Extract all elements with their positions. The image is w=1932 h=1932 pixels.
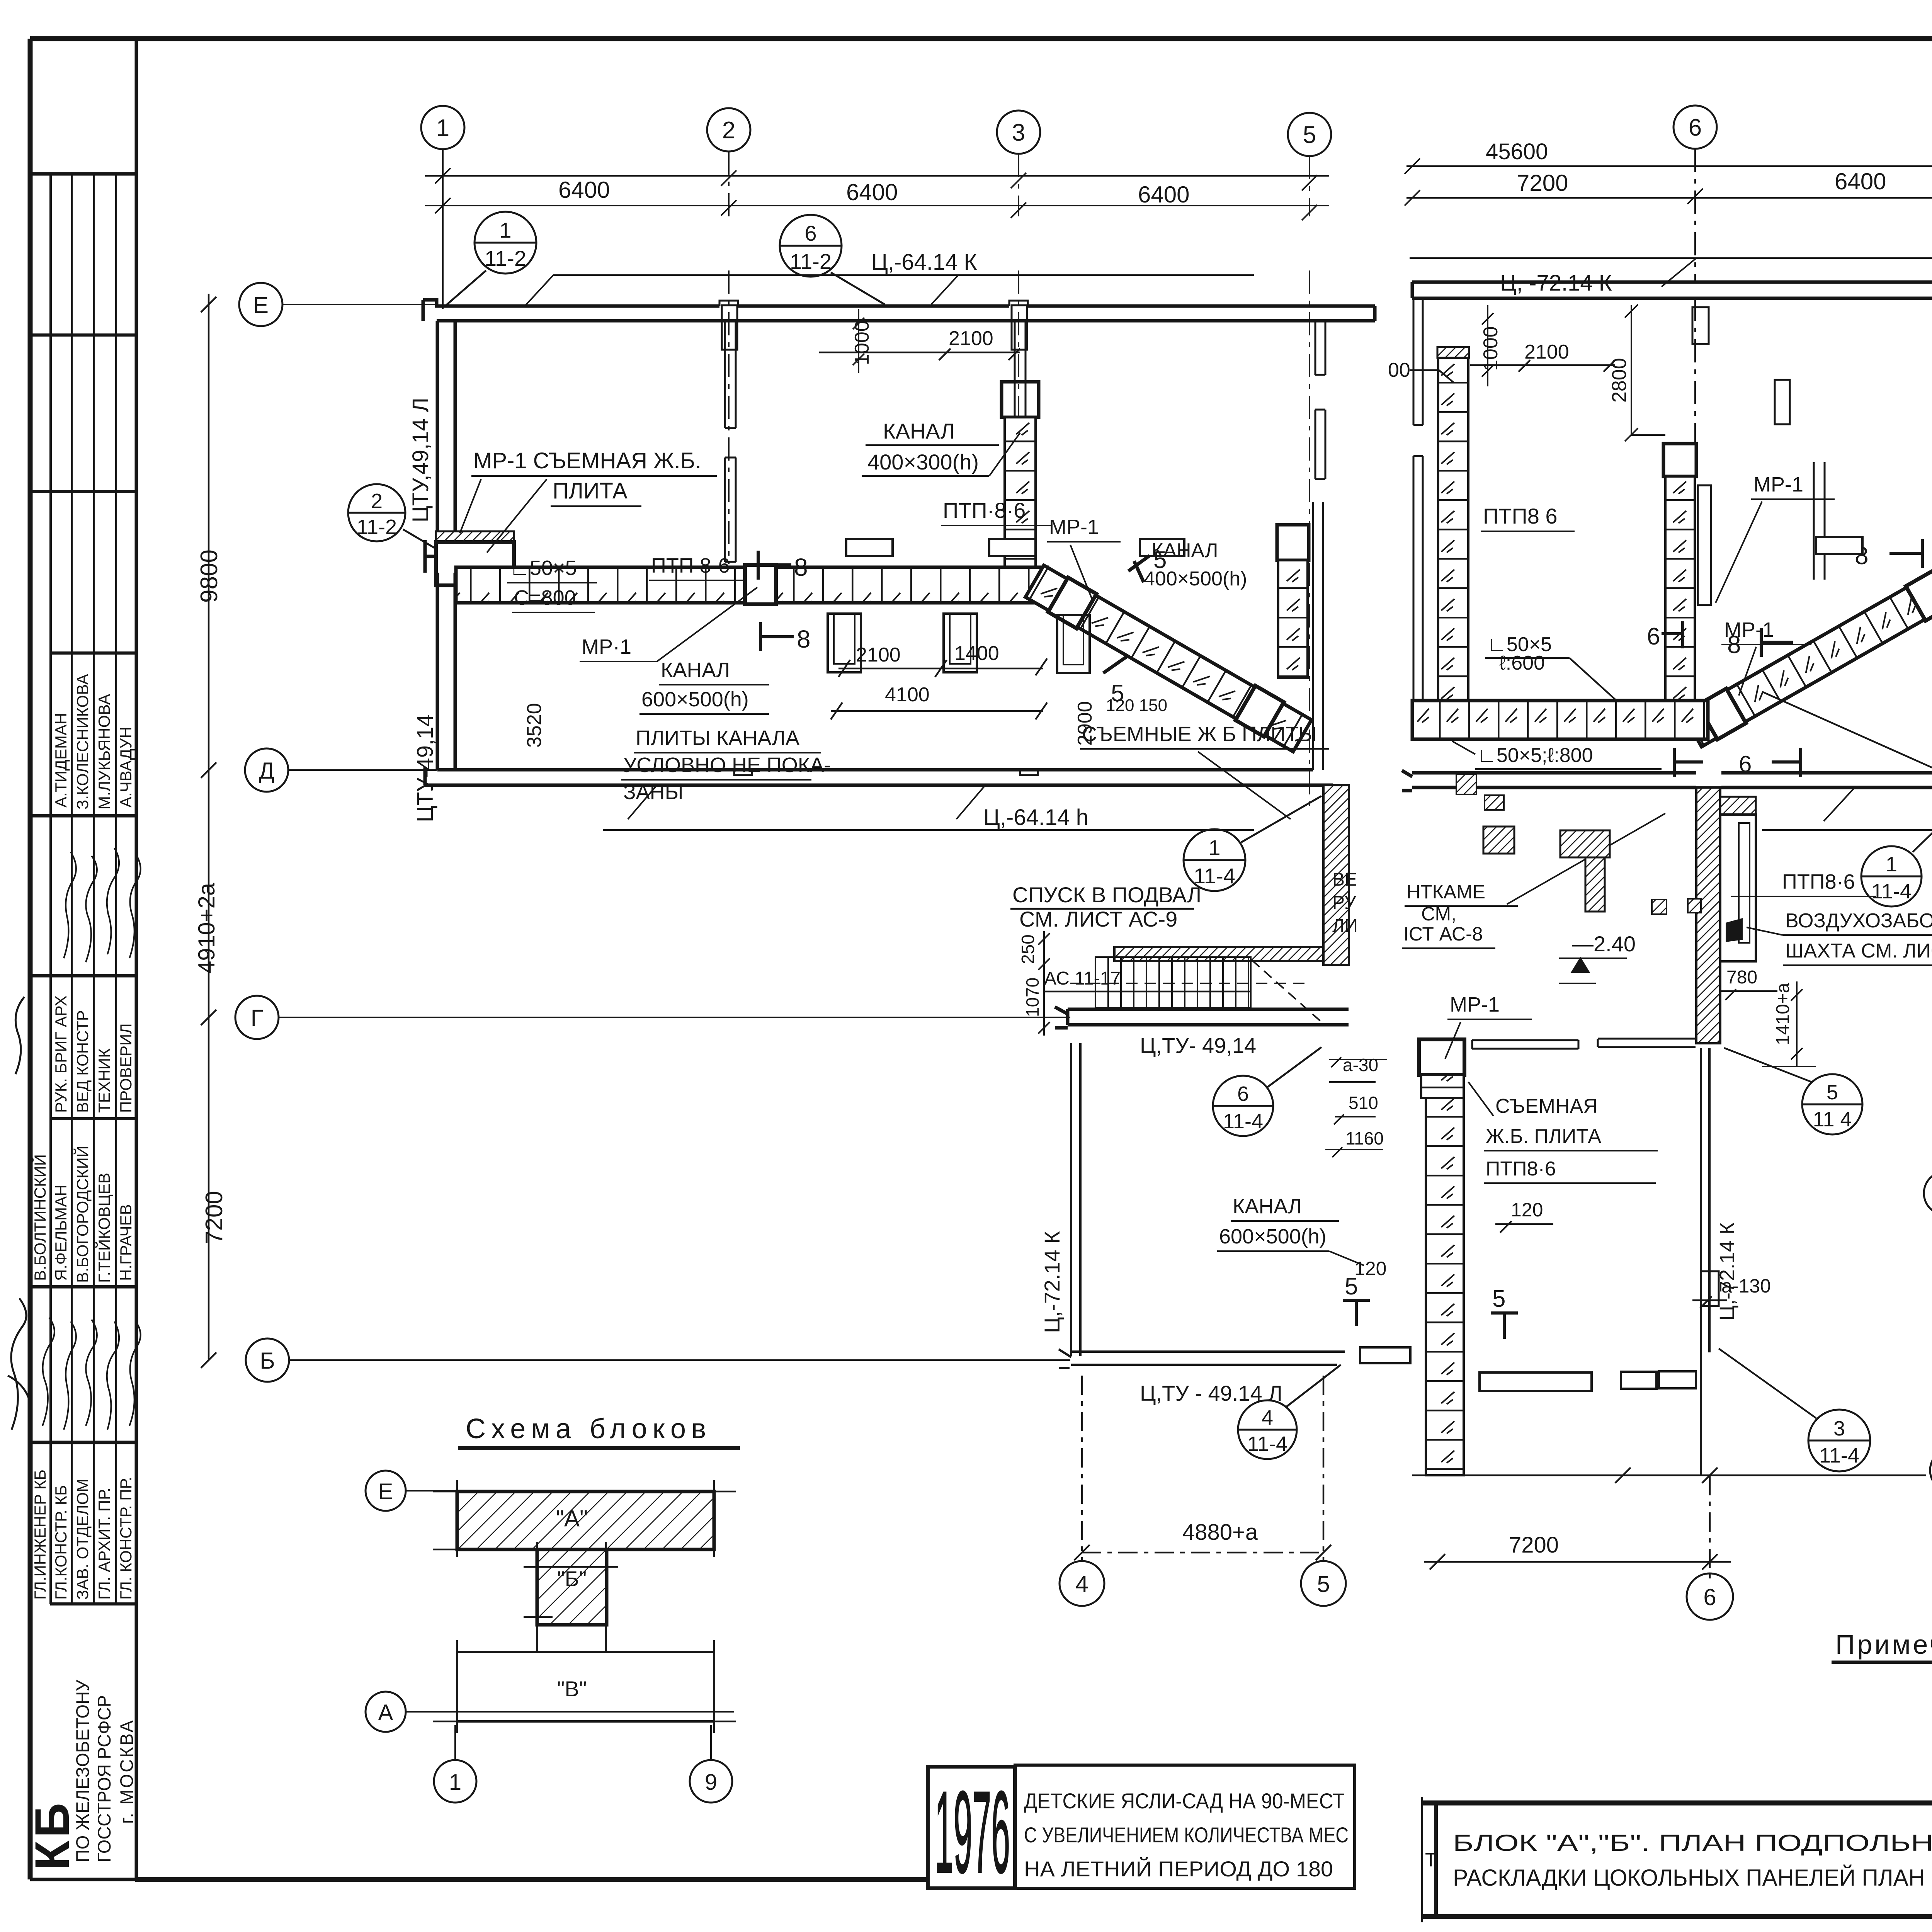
svg-text:ЛИ: ЛИ [1332,916,1358,936]
svg-text:780: 780 [1726,967,1757,988]
svg-text:МР-1: МР-1 [1049,515,1099,539]
svg-text:З.КОЛЕСНИКОВА: З.КОЛЕСНИКОВА [73,674,92,810]
svg-text:а-30: а-30 [1343,1055,1378,1075]
svg-text:РАСКЛАДКИ ЦОКОЛЬНЫХ ПАНЕЛЕЙ: РАСКЛАДКИ ЦОКОЛЬНЫХ ПАНЕЛЕЙ ПЛАН ПЕРЕКРЫ… [1453,1865,1932,1891]
svg-text:Ц,ТУ- 49,14: Ц,ТУ- 49,14 [1140,1033,1256,1058]
svg-text:1000: 1000 [1480,326,1502,371]
svg-text:5: 5 [1153,547,1167,573]
svg-text:"А": "А" [556,1505,588,1531]
svg-text:9800: 9800 [196,549,223,603]
svg-text:6: 6 [1703,1584,1716,1610]
svg-text:НТКАМЕ: НТКАМЕ [1406,881,1485,903]
svg-text:4: 4 [1075,1571,1088,1597]
svg-text:ПТП 8-6: ПТП 8-6 [651,554,730,577]
svg-text:1400: 1400 [954,642,999,665]
svg-text:7200: 7200 [1517,170,1568,196]
svg-text:В.БОГОРОДСКИЙ: В.БОГОРОДСКИЙ [73,1146,92,1283]
svg-text:6: 6 [1237,1082,1249,1105]
svg-text:5: 5 [1317,1571,1330,1597]
svg-text:3: 3 [1833,1417,1845,1440]
svg-text:11-2: 11-2 [485,246,526,270]
svg-text:С УВЕЛИЧЕНИЕМ КОЛИЧЕСТВА МЕС: С УВЕЛИЧЕНИЕМ КОЛИЧЕСТВА МЕС [1024,1823,1349,1847]
svg-text:ВЕД КОНСТР: ВЕД КОНСТР [73,1010,92,1113]
svg-text:Ц,-64.14 К: Ц,-64.14 К [871,250,977,275]
svg-text:Е: Е [378,1479,393,1504]
svg-text:600×500(h): 600×500(h) [641,688,749,711]
svg-text:11 4: 11 4 [1813,1108,1852,1131]
svg-text:2100: 2100 [949,327,993,350]
svg-text:Схема блоков: Схема блоков [466,1413,711,1444]
svg-text:Примечания: Примечания [1835,1629,1932,1660]
svg-text:Я.ФЕЛЬМАН: Я.ФЕЛЬМАН [52,1185,70,1281]
svg-text:ВОЗДУХОЗАБОРНАЯ ~: ВОЗДУХОЗАБОРНАЯ ~ [1785,910,1932,932]
svg-text:Ц,-72.14 К: Ц,-72.14 К [1040,1231,1064,1333]
svg-text:Ц,-64.14 h: Ц,-64.14 h [983,805,1088,830]
svg-text:4100: 4100 [885,684,930,706]
svg-text:8: 8 [794,553,808,581]
svg-text:ПТП8 6: ПТП8 6 [1483,504,1558,528]
svg-text:6: 6 [1647,623,1660,650]
svg-text:—2.40: —2.40 [1572,932,1636,956]
svg-text:45600: 45600 [1486,139,1548,164]
svg-text:9: 9 [705,1770,717,1795]
svg-text:∟50×5: ∟50×5 [509,556,577,580]
svg-text:Е: Е [253,292,269,318]
svg-text:1: 1 [499,218,511,242]
svg-text:Н.ГРАЧЕВ: Н.ГРАЧЕВ [117,1204,135,1281]
svg-text:"Б": "Б" [557,1566,587,1591]
svg-text:ДЕТСКИЕ ЯСЛИ-САД НА 90-МЕСТ: ДЕТСКИЕ ЯСЛИ-САД НА 90-МЕСТ [1024,1789,1345,1813]
svg-text:КАНАЛ: КАНАЛ [661,658,730,682]
svg-text:С=800: С=800 [514,586,576,609]
svg-text:Г.ТЕЙКОВЦЕВ: Г.ТЕЙКОВЦЕВ [95,1173,113,1283]
svg-text:ВЕ: ВЕ [1332,869,1357,890]
svg-text:МР-1 СЪЕМНАЯ Ж.Б.: МР-1 СЪЕМНАЯ Ж.Б. [473,448,701,473]
svg-text:6400: 6400 [558,177,610,203]
svg-text:ЗАВ. ОТДЕЛОМ: ЗАВ. ОТДЕЛОМ [73,1479,92,1600]
svg-text:5: 5 [1827,1081,1838,1104]
svg-text:ГЛ. АРХИТ. ПР.: ГЛ. АРХИТ. ПР. [95,1488,113,1600]
svg-text:2100: 2100 [856,644,901,666]
svg-text:120 150: 120 150 [1106,696,1167,715]
svg-text:"В": "В" [557,1677,587,1701]
svg-text:А.ТИДЕМАН: А.ТИДЕМАН [52,713,70,808]
svg-text:1: 1 [1886,853,1897,876]
svg-text:МР-1: МР-1 [1450,993,1500,1016]
svg-text:ЦТУ,49,14 Л: ЦТУ,49,14 Л [408,398,433,522]
svg-text:РУК. БРИГ АРХ: РУК. БРИГ АРХ [52,995,70,1113]
svg-text:600×500(h): 600×500(h) [1219,1225,1327,1248]
svg-text:5: 5 [1492,1286,1505,1312]
svg-text:2100: 2100 [1524,341,1569,363]
svg-text:КАНАЛ: КАНАЛ [1233,1195,1302,1218]
svg-text:СЪЕМНАЯ: СЪЕМНАЯ [1495,1095,1598,1117]
svg-text:СПУСК В ПОДВАЛ: СПУСК В ПОДВАЛ [1012,883,1201,907]
svg-text:КБ: КБ [26,1800,79,1870]
svg-text:ГЛ.ИНЖЕНЕР КБ: ГЛ.ИНЖЕНЕР КБ [31,1469,49,1600]
svg-text:11-4: 11-4 [1871,880,1912,903]
svg-text:6: 6 [1689,114,1702,141]
svg-text:МР·1: МР·1 [582,635,631,658]
svg-text:ПО ЖЕЛЕЗОБЕТОНУ: ПО ЖЕЛЕЗОБЕТОНУ [72,1679,93,1862]
svg-text:НА ЛЕТНИЙ ПЕРИОД ДО 180: НА ЛЕТНИЙ ПЕРИОД ДО 180 [1024,1857,1333,1881]
svg-text:В.БОЛТИНСКИЙ: В.БОЛТИНСКИЙ [31,1154,49,1281]
svg-text:Т: Т [1425,1849,1437,1871]
svg-text:6400: 6400 [1835,168,1886,194]
svg-text:А.ЧВАДУН: А.ЧВАДУН [117,726,135,808]
svg-text:МР-1: МР-1 [1724,618,1774,641]
svg-text:400×300(h): 400×300(h) [867,450,979,474]
svg-text:1: 1 [449,1770,461,1795]
svg-text:Ж.Б. ПЛИТА: Ж.Б. ПЛИТА [1486,1125,1601,1148]
svg-text:2: 2 [722,117,735,144]
svg-text:11-4: 11-4 [1223,1110,1263,1133]
svg-text:1160: 1160 [1345,1128,1384,1148]
svg-text:СМ. ЛИСТ АС-9: СМ. ЛИСТ АС-9 [1019,907,1177,931]
svg-text:∟50×5;ℓ:800: ∟50×5;ℓ:800 [1477,744,1593,767]
svg-text:7200: 7200 [201,1191,228,1244]
svg-text:КАНАЛ: КАНАЛ [883,419,955,443]
svg-text:БЛОК "А","Б". ПЛАН ПОДПОЛЬНЫ: БЛОК "А","Б". ПЛАН ПОДПОЛЬНЫХ -КАНАЛОВ. … [1453,1830,1932,1856]
svg-text:2: 2 [371,490,383,513]
svg-text:Г: Г [251,1005,264,1031]
svg-text:а-130: а-130 [1721,1275,1771,1297]
svg-text:ШАХТА СМ. ЛИСТ АС-8: ШАХТА СМ. ЛИСТ АС-8 [1785,940,1932,962]
svg-text:11-4: 11-4 [1819,1444,1859,1467]
svg-text:4: 4 [1262,1406,1273,1429]
svg-text:11-4: 11-4 [1247,1432,1287,1456]
svg-text:3: 3 [1012,119,1025,146]
svg-text:ТЕХНИК: ТЕХНИК [95,1048,113,1113]
svg-text:4880+а: 4880+а [1182,1520,1258,1545]
svg-text:ПЛИТЫ КАНАЛА: ПЛИТЫ КАНАЛА [636,726,799,750]
svg-text:ГЛ. КОНСТР. ПР.: ГЛ. КОНСТР. ПР. [117,1477,135,1600]
svg-text:СЪЕМНЫЕ Ж Б ПЛИТЫ: СЪЕМНЫЕ Ж Б ПЛИТЫ [1082,723,1317,746]
svg-text:1: 1 [1208,835,1220,860]
svg-text:ПТП8·6: ПТП8·6 [1782,870,1855,893]
svg-text:М.ЛУКЬЯНОВА: М.ЛУКЬЯНОВА [95,694,113,810]
svg-text:УСЛОВНО НЕ ПОКА-: УСЛОВНО НЕ ПОКА- [623,753,831,777]
svg-text:120: 120 [1511,1199,1543,1221]
svg-text:ГОССТРОЯ РСФСР: ГОССТРОЯ РСФСР [94,1695,114,1862]
svg-text:ℓ:600: ℓ:600 [1499,652,1545,674]
svg-text:6400: 6400 [846,179,898,205]
svg-text:ПТП8·6: ПТП8·6 [1486,1158,1556,1180]
svg-text:250: 250 [1018,934,1038,964]
svg-text:510: 510 [1349,1093,1378,1113]
svg-text:АС 11-17: АС 11-17 [1044,968,1121,989]
svg-text:11-2: 11-2 [357,515,397,539]
svg-text:5: 5 [1303,122,1316,148]
svg-text:МР-1: МР-1 [1753,473,1803,496]
svg-text:г. МОСКВА: г. МОСКВА [116,1719,137,1824]
svg-text:6400: 6400 [1138,182,1189,207]
svg-text:1410+а: 1410+а [1773,983,1793,1045]
svg-text:3520: 3520 [523,703,546,748]
svg-text:ГЛ.КОНСТР. КБ: ГЛ.КОНСТР. КБ [52,1485,70,1600]
svg-text:2800: 2800 [1608,358,1631,403]
svg-text:ІСТ АС-8: ІСТ АС-8 [1403,923,1483,945]
svg-text:7200: 7200 [1509,1532,1559,1558]
svg-text:РУ: РУ [1332,893,1356,913]
svg-text:11-4: 11-4 [1194,864,1235,888]
svg-text:00: 00 [1388,359,1410,381]
svg-text:5: 5 [1345,1273,1358,1300]
svg-text:6: 6 [804,221,816,245]
svg-text:8: 8 [797,625,811,653]
svg-text:ПТП·8·6: ПТП·8·6 [943,498,1026,522]
svg-text:Ц,-72.14 К: Ц,-72.14 К [1716,1222,1739,1321]
svg-text:120: 120 [1354,1258,1386,1279]
svg-text:ЗАНЫ: ЗАНЫ [623,781,683,804]
svg-text:А: А [378,1700,393,1725]
svg-text:1070: 1070 [1022,978,1043,1017]
svg-text:ПЛИТА: ПЛИТА [553,478,628,503]
svg-text:1976: 1976 [935,1767,1010,1897]
svg-text:11-2: 11-2 [790,249,832,274]
svg-text:Д: Д [259,758,275,784]
svg-text:ПРОВЕРИЛ: ПРОВЕРИЛ [117,1023,135,1113]
svg-text:Б: Б [260,1348,275,1374]
svg-text:1: 1 [436,115,449,141]
svg-text:4910+2а: 4910+2а [194,883,219,974]
